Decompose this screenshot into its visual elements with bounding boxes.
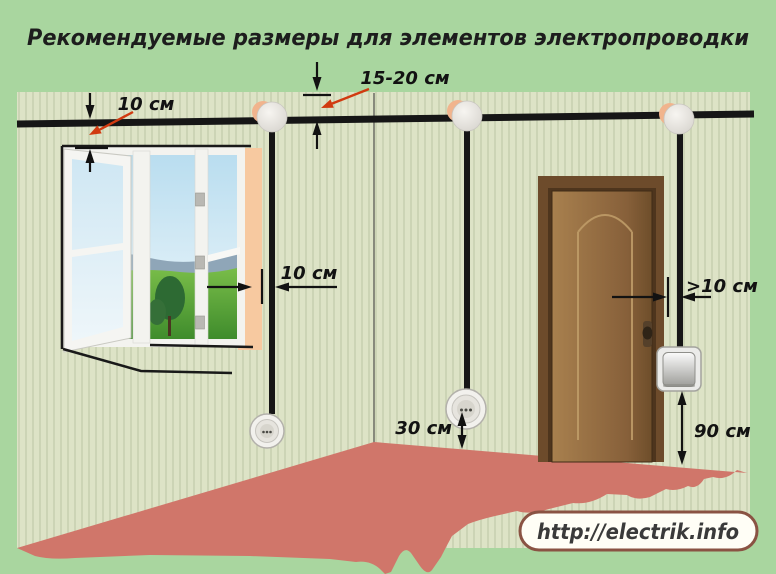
wiring-diagram: 10 см 15-20 см 10 см >10 см 30 см [0, 0, 776, 574]
dimension-label: 30 см [395, 418, 452, 439]
window-sash-frame [195, 149, 208, 345]
diagram-canvas: 10 см 15-20 см 10 см >10 см 30 см [0, 0, 776, 574]
door-leaf [552, 191, 652, 462]
dimension-label: 90 см [694, 421, 751, 442]
socket-middle [446, 389, 486, 429]
dimension-label: 15-20 см [360, 68, 450, 89]
light-switch [657, 347, 701, 391]
door [538, 176, 664, 462]
page-title: Рекомендуемые размеры для элементов элек… [27, 26, 749, 51]
dimension-label: 10 см [118, 94, 175, 115]
window [62, 146, 262, 373]
window-open-sash [64, 149, 131, 352]
dimension-label: 10 см [281, 263, 338, 284]
watermark-url: http://electrik.info [537, 520, 739, 544]
socket-left [250, 414, 284, 448]
watermark-pill: http://electrik.info [520, 512, 757, 550]
door-handle [643, 321, 653, 347]
dimension-label: >10 см [686, 276, 758, 297]
window-mullion [133, 151, 150, 343]
